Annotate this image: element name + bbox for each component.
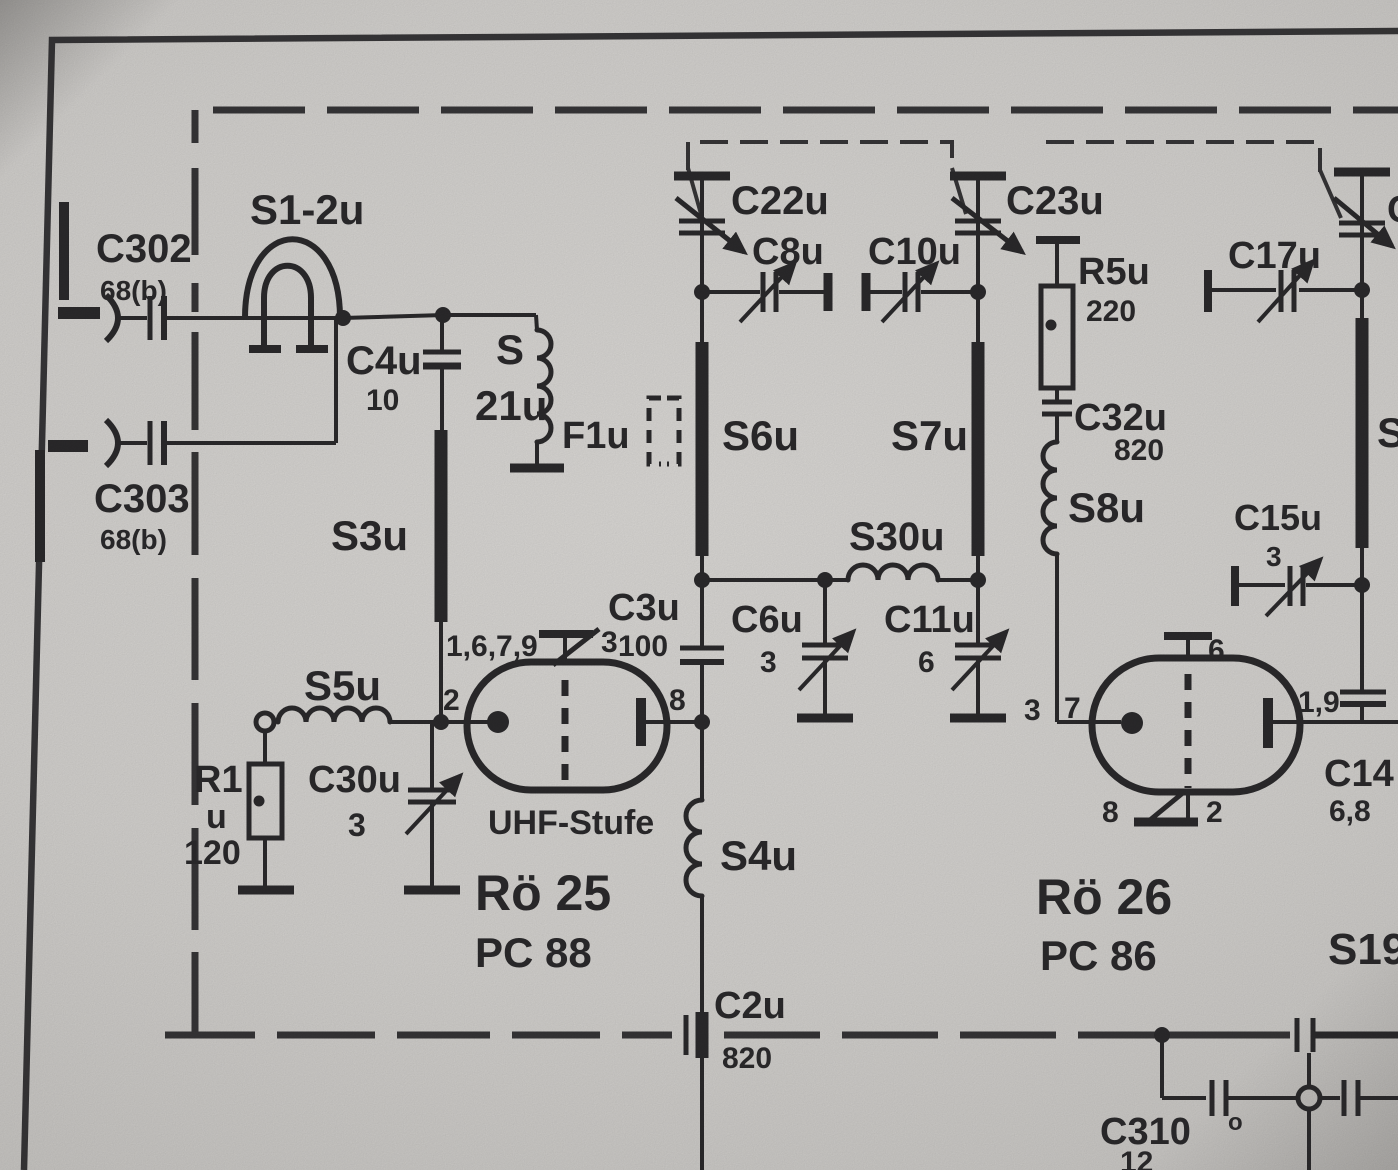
- schematic-photo: C302 68(b) S1-2u C303 68(b) C4u 10 S 21u…: [0, 0, 1398, 1170]
- photo-grain-overlay: [0, 0, 1398, 1170]
